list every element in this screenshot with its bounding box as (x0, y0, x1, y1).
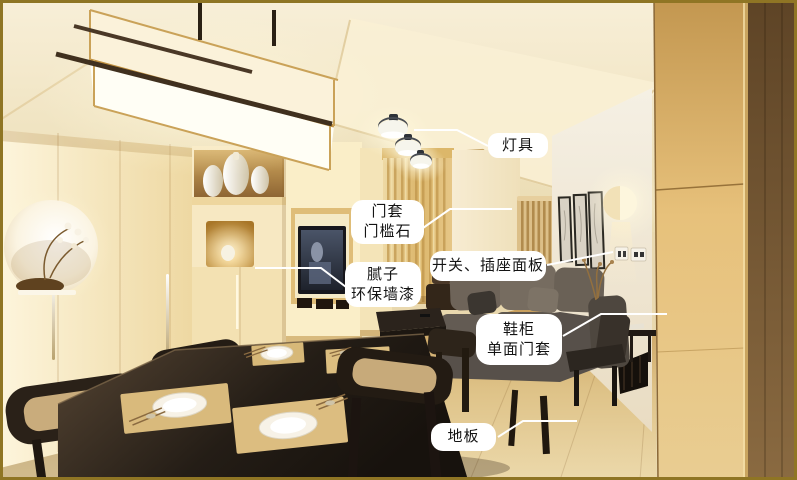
annotated-room-photo: 灯具 门套 门槛石 开关、插座面板 腻子 环保墙漆 鞋柜 单面门套 地板 (0, 0, 797, 480)
tv-wall (286, 142, 362, 348)
callout-switch-socket-text: 开关、插座面板 (432, 256, 544, 276)
wooden-door-panel (654, 0, 746, 480)
callout-wall-paint: 腻子 环保墙漆 (345, 262, 421, 307)
callout-wall-paint-line2: 环保墙漆 (351, 285, 415, 305)
place-setting (243, 342, 304, 366)
callout-floor: 地板 (431, 423, 496, 451)
callout-shoe-cabinet: 鞋柜 单面门套 (476, 314, 562, 365)
callout-shoe-cabinet-line2: 单面门套 (487, 340, 551, 360)
callout-door-frame-line2: 门槛石 (363, 222, 411, 242)
dark-wood-panel (745, 0, 797, 480)
callout-switch-socket: 开关、插座面板 (430, 251, 546, 281)
callout-shoe-cabinet-line1: 鞋柜 (503, 320, 535, 340)
callout-floor-text: 地板 (447, 427, 479, 447)
callout-lighting: 灯具 (488, 133, 548, 158)
callout-wall-paint-line1: 腻子 (367, 265, 399, 285)
callout-door-frame-line1: 门套 (371, 202, 403, 222)
callout-lighting-text: 灯具 (502, 136, 534, 156)
callout-door-frame: 门套 门槛石 (351, 200, 424, 244)
